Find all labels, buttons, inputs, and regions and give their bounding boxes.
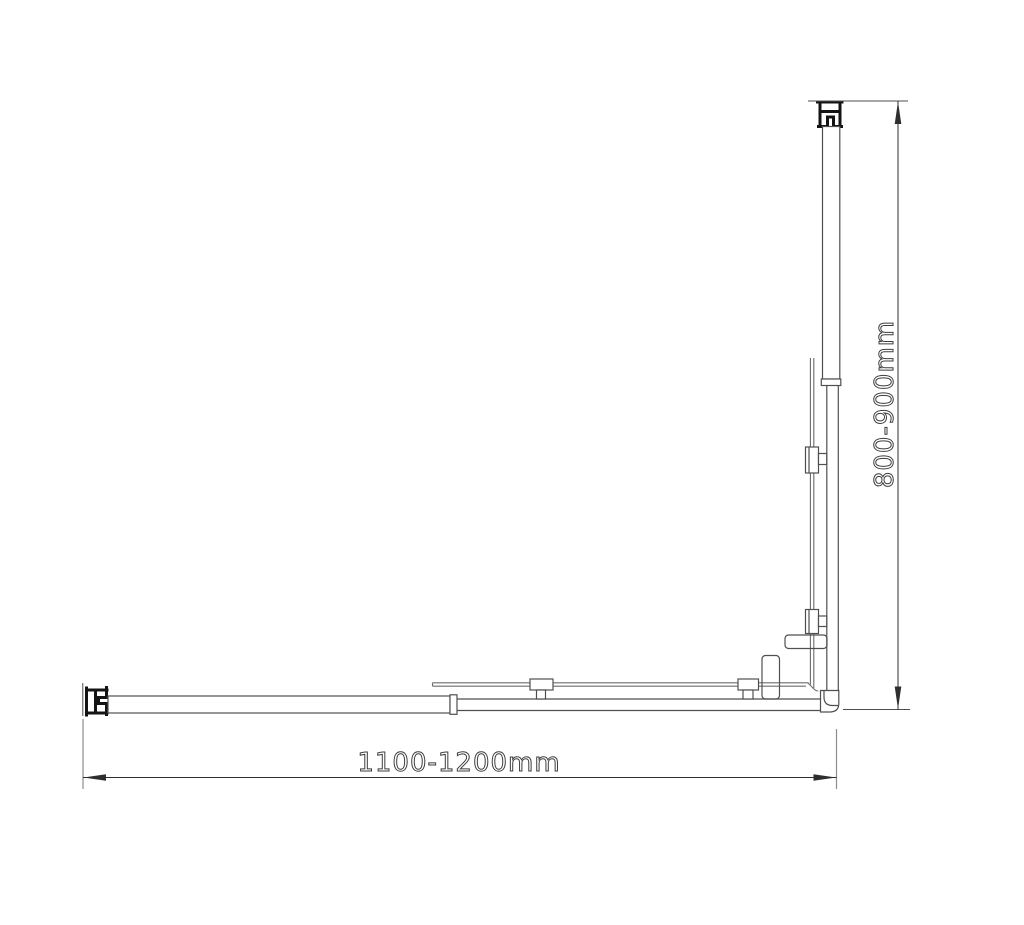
- glass-clamp-right-bottom: [806, 610, 827, 634]
- door-handle-bottom: [762, 656, 780, 700]
- width-arrow-left: [84, 774, 107, 781]
- corner-sleeve: [821, 691, 839, 713]
- wall-profile-top: [818, 102, 843, 127]
- height-arrow-top: [895, 102, 902, 125]
- rail-cap-bottom: [450, 695, 457, 715]
- glass-miter-joint: [808, 683, 818, 691]
- glass-clamp-bottom-left: [530, 679, 553, 699]
- technical-drawing: 800-900mm 1100-1200mm: [0, 0, 1024, 925]
- width-arrow-right: [814, 774, 837, 781]
- door-handle-right: [785, 635, 827, 649]
- wall-profile-left: [87, 688, 108, 716]
- glass-clamp-right-top: [806, 447, 827, 473]
- glass-clamp-bottom-right: [738, 679, 759, 699]
- width-dimension: 1100-1200mm: [83, 719, 837, 789]
- right-wall-assembly: [785, 102, 842, 691]
- corner-joint: [808, 683, 839, 712]
- bottom-wall-assembly: [83, 656, 821, 717]
- support-tube-right: [823, 127, 840, 380]
- height-dimension-label: 800-900mm: [870, 320, 900, 488]
- rail-bottom-wide: [108, 696, 450, 713]
- tube-cap-right: [821, 379, 841, 386]
- height-arrow-bottom: [895, 687, 902, 710]
- drawing-canvas: 800-900mm 1100-1200mm: [0, 0, 1024, 925]
- width-dimension-label: 1100-1200mm: [357, 748, 560, 778]
